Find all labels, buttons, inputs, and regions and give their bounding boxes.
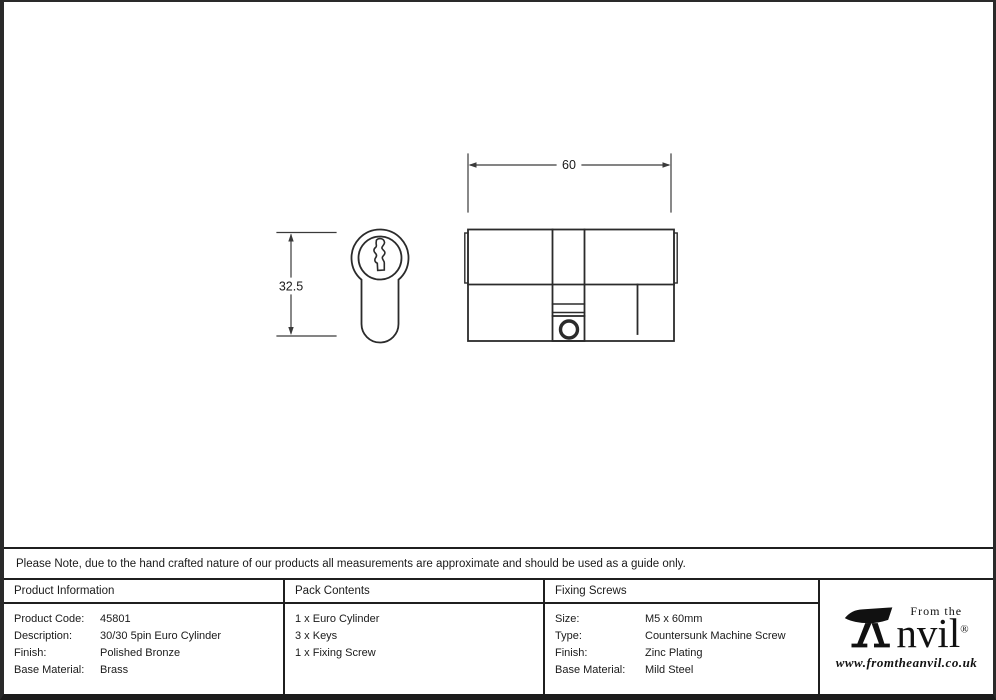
row-label: Description:	[14, 628, 100, 645]
cam-fixing-hole	[561, 321, 578, 338]
fixing-screws-body: Size: M5 x 60mm Type: Countersunk Machin…	[545, 604, 818, 679]
right-tab	[674, 233, 677, 283]
row-label: Base Material:	[555, 662, 645, 679]
row-label: Product Code:	[14, 611, 100, 628]
logo-name: nvil®	[896, 613, 968, 654]
arrow-up-icon	[288, 234, 293, 242]
row-value: Zinc Plating	[645, 645, 818, 662]
column-product-information: Product Information Product Code: 45801 …	[4, 580, 285, 694]
logo-name-text: nvil	[896, 610, 960, 656]
column-pack-contents: Pack Contents 1 x Euro Cylinder 3 x Keys…	[285, 580, 545, 694]
row-label: Finish:	[14, 645, 100, 662]
logo-url: www.fromtheanvil.co.uk	[836, 655, 978, 671]
list-item: 1 x Fixing Screw	[295, 645, 543, 662]
row-label: Finish:	[555, 645, 645, 662]
row-label: Type:	[555, 628, 645, 645]
left-tab	[465, 233, 468, 283]
product-information-body: Product Code: 45801 Description: 30/30 5…	[4, 604, 283, 679]
product-spec-sheet: 32.5 60	[0, 0, 996, 700]
table-row: Type: Countersunk Machine Screw	[555, 628, 818, 645]
arrow-down-icon	[288, 327, 293, 335]
dimension-height-label: 32.5	[279, 280, 303, 294]
list-item: 1 x Euro Cylinder	[295, 611, 543, 628]
table-row: Product Code: 45801	[14, 611, 283, 628]
note-bar: Please Note, due to the hand crafted nat…	[4, 547, 993, 580]
arrow-right-icon	[663, 162, 671, 167]
row-value: 30/30 5pin Euro Cylinder	[100, 628, 283, 645]
spec-table: Product Information Product Code: 45801 …	[4, 580, 993, 694]
row-value: Brass	[100, 662, 283, 679]
anvil-icon	[844, 604, 894, 654]
table-row: Finish: Zinc Plating	[555, 645, 818, 662]
row-label: Base Material:	[14, 662, 100, 679]
column-fixing-screws: Fixing Screws Size: M5 x 60mm Type: Coun…	[545, 580, 820, 694]
pack-contents-header: Pack Contents	[285, 580, 543, 604]
column-header-label: Product Information	[14, 585, 114, 597]
logo-text: From the nvil®	[896, 604, 968, 654]
table-row: Base Material: Brass	[14, 662, 283, 679]
brand-logo-cell: From the nvil® www.fromtheanvil.co.uk	[820, 580, 993, 694]
column-header-label: Fixing Screws	[555, 585, 627, 597]
row-value: 45801	[100, 611, 283, 628]
row-value: Countersunk Machine Screw	[645, 628, 818, 645]
dimension-width-label: 60	[562, 158, 576, 172]
row-value: Polished Bronze	[100, 645, 283, 662]
row-label: Size:	[555, 611, 645, 628]
bottom-section: Please Note, due to the hand crafted nat…	[4, 547, 993, 694]
list-item: 3 x Keys	[295, 628, 543, 645]
row-value: M5 x 60mm	[645, 611, 818, 628]
technical-drawing: 32.5 60	[250, 140, 710, 365]
anvil-logo: From the nvil®	[844, 604, 968, 654]
table-row: Description: 30/30 5pin Euro Cylinder	[14, 628, 283, 645]
table-row: Base Material: Mild Steel	[555, 662, 818, 679]
column-header-label: Pack Contents	[295, 585, 370, 597]
arrow-left-icon	[469, 162, 477, 167]
table-row: Finish: Polished Bronze	[14, 645, 283, 662]
row-value: Mild Steel	[645, 662, 818, 679]
cylinder-front-view	[351, 230, 408, 343]
fixing-screws-header: Fixing Screws	[545, 580, 818, 604]
cylinder-side-view	[465, 230, 677, 342]
pack-contents-body: 1 x Euro Cylinder 3 x Keys 1 x Fixing Sc…	[285, 604, 543, 662]
registered-mark: ®	[960, 623, 968, 635]
note-text: Please Note, due to the hand crafted nat…	[16, 558, 686, 570]
keyhole-icon	[374, 239, 385, 271]
table-row: Size: M5 x 60mm	[555, 611, 818, 628]
product-information-header: Product Information	[4, 580, 283, 604]
